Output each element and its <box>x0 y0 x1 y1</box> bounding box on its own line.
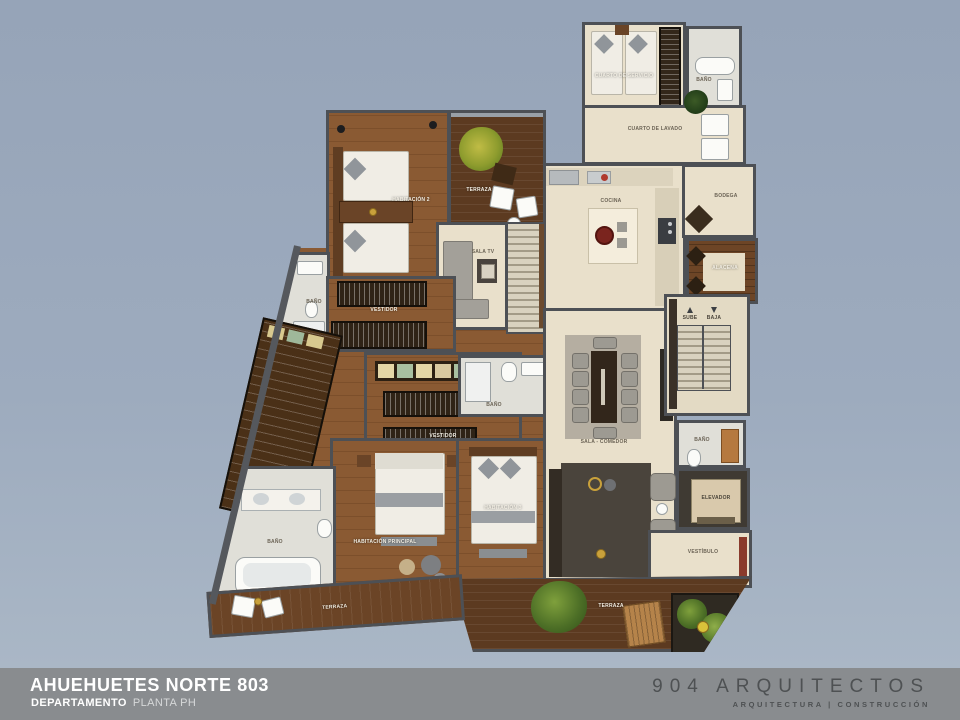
label-bodega: BODEGA <box>701 193 751 200</box>
label-sala-comedor: SALA - COMEDOR <box>564 439 644 446</box>
floor-plan: CUARTO DE SERVICIO BAÑO CUARTO DE LAVADO… <box>0 0 960 668</box>
room-elevador: ELEVADOR <box>676 468 750 530</box>
room-cocina: COCINA <box>540 163 686 311</box>
label-bano-3: BAÑO <box>479 402 509 409</box>
brand-name: 904 ARQUITECTOS <box>652 676 930 698</box>
label-bano-principal: BAÑO <box>255 539 295 546</box>
label-baja: BAJA <box>699 315 729 322</box>
label-bano-right: BAÑO <box>685 437 719 444</box>
label-cuarto-servicio: CUARTO DE SERVICIO <box>589 73 659 80</box>
label-terraza-sur: TERRAZA <box>583 603 639 610</box>
room-bano-3: BAÑO <box>458 355 550 417</box>
room-terraza-sur: TERRAZA <box>452 576 752 652</box>
label-cocina: COCINA <box>581 198 641 205</box>
stairs-down-arrow <box>711 307 717 313</box>
room-bano-right: BAÑO <box>676 420 746 468</box>
terrace-plant <box>531 581 587 633</box>
label-terraza-norte: TERRAZA <box>453 187 505 194</box>
label-vestidor-1: VESTIDOR <box>359 307 409 314</box>
room-habitacion-principal: HABITACIÓN PRINCIPAL <box>330 438 466 598</box>
label-cuarto-lavado: CUARTO DE LAVADO <box>623 126 687 133</box>
label-vestibulo: VESTÍBULO <box>673 549 733 556</box>
room-terraza-norte: TERRAZA <box>448 110 546 232</box>
label-sala-tv: SALA TV <box>461 249 505 256</box>
room-stairwell: SUBE BAJA <box>664 294 750 416</box>
room-vestidor-1: VESTIDOR <box>326 276 456 352</box>
room-bodega: BODEGA <box>682 164 756 238</box>
room-cuarto-servicio: CUARTO DE SERVICIO <box>582 22 686 108</box>
title-block: AHUEHUETES NORTE 803 DEPARTAMENTOPLANTA … <box>0 668 960 720</box>
stairs-up-arrow <box>687 307 693 313</box>
label-terraza-poniente: TERRAZA <box>307 602 363 613</box>
stairs-sala <box>506 222 546 334</box>
project-title: AHUEHUETES NORTE 803 <box>30 675 269 696</box>
label-bano-2: BAÑO <box>299 299 329 306</box>
label-habitacion-principal: HABITACIÓN PRINCIPAL <box>349 539 421 546</box>
project-subtitle: DEPARTAMENTOPLANTA PH <box>31 697 196 709</box>
label-habitacion-3: HABITACIÓN 3 <box>463 505 543 512</box>
label-alacena: ALACENA <box>697 265 753 272</box>
page: { "title_block": { "project": "AHUEHUETE… <box>0 0 960 720</box>
label-elevador: ELEVADOR <box>687 495 745 502</box>
label-bano-servicio: BAÑO <box>689 77 719 84</box>
room-cuarto-lavado: CUARTO DE LAVADO <box>582 105 746 165</box>
unit-type: DEPARTAMENTO <box>31 697 127 709</box>
floor-name: PLANTA PH <box>133 697 196 709</box>
brand-tagline: ARQUITECTURA | CONSTRUCCIÓN <box>733 700 930 709</box>
room-habitacion-3: HABITACIÓN 3 <box>456 438 550 596</box>
label-habitacion-2: HABITACIÓN 2 <box>373 197 449 204</box>
